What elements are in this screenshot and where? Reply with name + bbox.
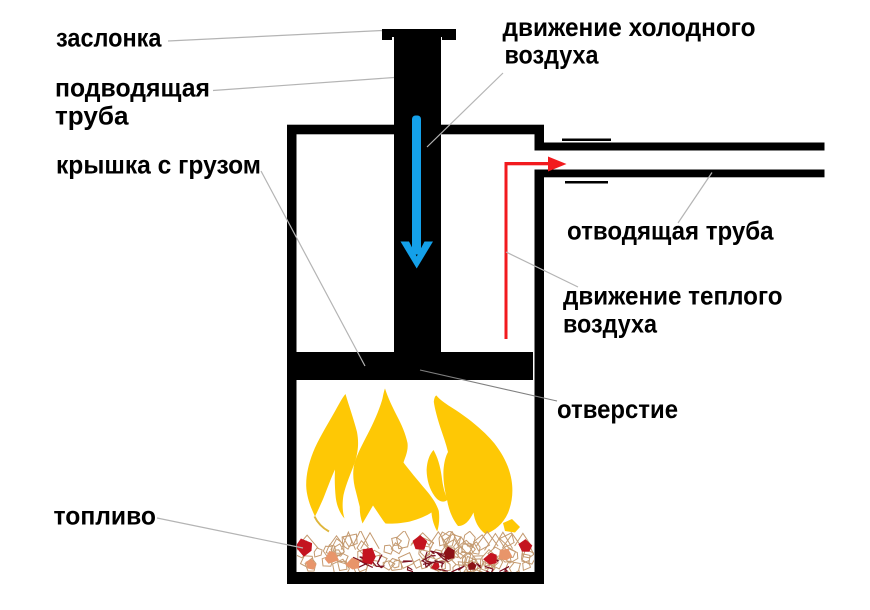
svg-text:движение холодного: движение холодного: [503, 12, 756, 42]
svg-text:крышка с грузом: крышка с грузом: [56, 150, 261, 180]
svg-text:отводящая труба: отводящая труба: [567, 216, 774, 246]
svg-text:топливо: топливо: [54, 501, 157, 531]
svg-text:движение теплого: движение теплого: [563, 281, 783, 311]
svg-text:воздуха: воздуха: [563, 309, 657, 339]
svg-text:подводящая: подводящая: [55, 72, 210, 102]
svg-text:заслонка: заслонка: [56, 23, 162, 53]
svg-text:труба: труба: [55, 101, 129, 131]
svg-text:воздуха: воздуха: [505, 39, 599, 69]
svg-text:отверстие: отверстие: [557, 394, 678, 424]
